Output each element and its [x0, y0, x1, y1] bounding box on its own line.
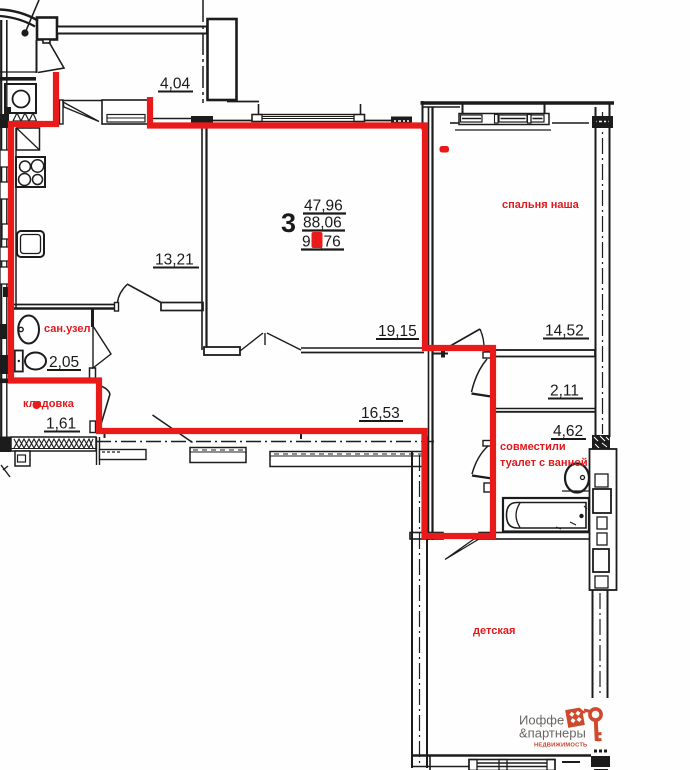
svg-text:13,21: 13,21	[155, 252, 194, 269]
svg-text:кладовка: кладовка	[23, 398, 75, 410]
svg-text:&партнеры: &партнеры	[519, 726, 586, 741]
svg-text:1,61: 1,61	[46, 416, 76, 433]
svg-text:88,06: 88,06	[303, 215, 342, 232]
svg-text:детская: детская	[473, 625, 515, 637]
svg-text:16,53: 16,53	[361, 405, 400, 422]
svg-text:совместили: совместили	[500, 441, 566, 453]
svg-text:4,04: 4,04	[160, 76, 191, 93]
svg-text:спальня наша: спальня наша	[502, 199, 580, 211]
svg-text:2,05: 2,05	[49, 354, 79, 371]
svg-text:2,11: 2,11	[550, 383, 579, 400]
svg-text:3: 3	[281, 208, 296, 238]
svg-text:туалет с ванной: туалет с ванной	[500, 457, 588, 469]
svg-text:47,96: 47,96	[304, 198, 343, 215]
svg-text:19,15: 19,15	[378, 323, 417, 340]
svg-text:НЕДВИЖИМОСТЬ: НЕДВИЖИМОСТЬ	[534, 743, 587, 749]
svg-text:14,52: 14,52	[545, 323, 584, 340]
svg-text:4,62: 4,62	[553, 423, 583, 440]
svg-text:сан.узел: сан.узел	[44, 323, 90, 335]
